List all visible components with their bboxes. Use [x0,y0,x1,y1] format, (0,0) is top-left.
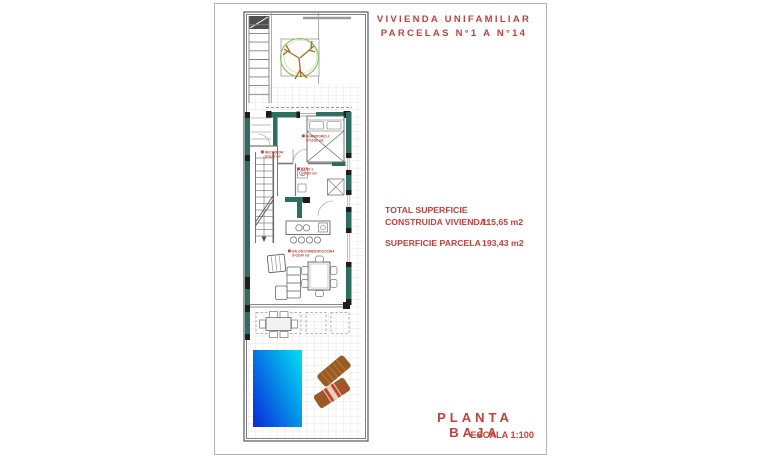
bedroom-area: S=10,80 m2 [306,139,324,143]
total-surface-label: TOTAL SUPERFICIE [385,204,535,216]
title-line2: PARCELAS N°1 A N°14 [374,27,534,41]
closet [251,118,271,139]
armchair [267,254,286,273]
title-line1: VIVIENDA UNIFAMILIAR [374,13,534,27]
kitchen-island [286,221,330,243]
drawing-sheet: DORMITORIO 1 S=10,80 m2 RECIBIDOR S=3,40… [0,0,770,460]
living-area: S=28,40 m2 [292,254,310,258]
hall-area: S=3,40 m2 [265,155,281,159]
tree [281,39,320,80]
plan-scale: ESCALA 1:100 [412,430,534,440]
drawing-title: VIVIENDA UNIFAMILIAR PARCELAS N°1 A N°14 [374,13,534,40]
interior-stair [256,152,274,243]
area-summary: TOTAL SUPERFICIE CONSTRUIDA VIVIENDA: 11… [385,204,535,249]
parcel-surface-value: 193,43 m2 [482,237,524,249]
toilet [298,184,306,192]
pool [253,350,302,427]
parcel-surface-row: SUPERFICIE PARCELA : 193,43 m2 [385,237,535,249]
built-surface-value: 115,65 m2 [482,216,523,228]
built-surface-row: CONSTRUIDA VIVIENDA: 115,65 m2 [385,216,535,228]
bath-area: S=4,10 m2 [301,172,317,176]
dining-table [302,256,338,297]
